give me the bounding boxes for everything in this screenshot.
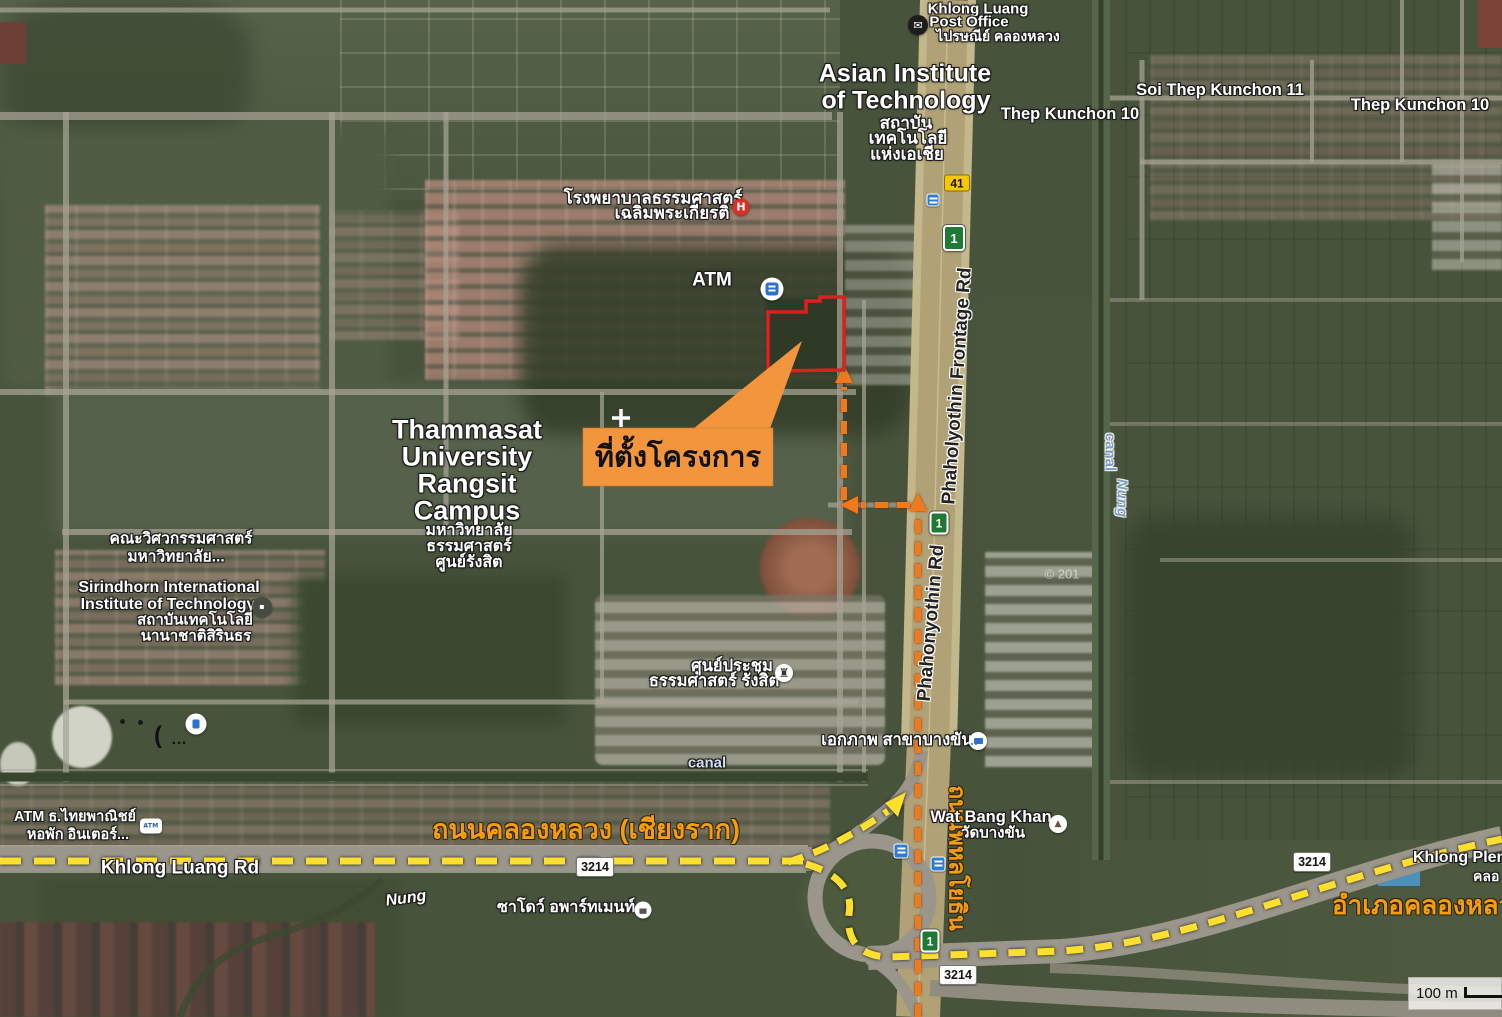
lodging-glyph: ▄ bbox=[640, 906, 647, 915]
ait-label-line1: Asian Institute bbox=[819, 62, 991, 87]
thep-kunchon-10-west-label: Thep Kunchon 10 bbox=[1001, 106, 1139, 123]
plus-marker bbox=[612, 409, 630, 427]
route-3214-shield-south: 3214 bbox=[939, 965, 977, 985]
thammasat-label-thai2: ธรรมศาสตร์ bbox=[426, 539, 511, 555]
highway-1-shield-top: 1 bbox=[943, 225, 965, 251]
soi-thep-kunchon-11-label: Soi Thep Kunchon 11 bbox=[1136, 82, 1304, 99]
canal-nung-label-canal: canal bbox=[1103, 433, 1118, 471]
route-3214-shield-east: 3214 bbox=[1293, 852, 1331, 872]
lodging-icon: ▄ bbox=[635, 902, 652, 919]
khlong-luang-thai-label: ถนนคลองหลวง (เชียงราก) bbox=[432, 817, 740, 844]
wat-bang-khan-label-line1: Wat Bang Khan bbox=[930, 809, 1051, 826]
highway-1-text: 1 bbox=[950, 232, 957, 245]
shadow-apartment-label: ซาโดว์ อพาร์ทเมนท์ bbox=[497, 900, 635, 916]
fuel-pump-glyph bbox=[193, 720, 200, 729]
post-office-label-thai: ไปรษณีย์ คลองหลวง bbox=[936, 29, 1059, 43]
copyright-watermark: © 201 bbox=[1045, 568, 1080, 581]
ekkaphap-branch-label: เอกภาพ สาขาบางขัน bbox=[821, 732, 972, 749]
envelope-glyph: ✉ bbox=[913, 20, 922, 31]
print-artifact-dot1 bbox=[120, 719, 125, 724]
temple-glyph: ▲ bbox=[1055, 820, 1062, 829]
thammasat-label-line3: Rangsit bbox=[417, 471, 516, 498]
ait-label-line2: of Technology bbox=[822, 89, 991, 114]
engineering-label-line2: มหาวิทยาลัย... bbox=[127, 549, 224, 565]
canal-nung-label-nung: Nung bbox=[1115, 479, 1130, 517]
thammasat-label-line4: Campus bbox=[414, 498, 521, 525]
route-3214-text: 3214 bbox=[581, 861, 609, 874]
site-callout-label: ที่ตั้งโครงการ bbox=[595, 444, 761, 473]
hospital-h-glyph: H bbox=[736, 202, 745, 213]
convention-label-line2: ธรรมศาสตร์ รังสิต bbox=[649, 673, 779, 690]
khlong-luang-rd-label: Khlong Luang Rd bbox=[101, 859, 259, 878]
print-artifact-paren: ( bbox=[154, 724, 162, 748]
siit-label-line1: Sirindhorn International bbox=[78, 580, 259, 596]
thammasat-label-line2: University bbox=[402, 444, 533, 471]
yellow-dashed-route-ramp bbox=[788, 811, 888, 862]
convention-glyph: ♜ bbox=[779, 667, 790, 679]
cart-glyph bbox=[974, 738, 983, 744]
bank-icon bbox=[761, 278, 784, 301]
map-canvas: Khlong Luang Post Office ไปรษณีย์ คลองหล… bbox=[0, 0, 1502, 1017]
canal-west-label: canal bbox=[688, 756, 726, 771]
route-41-text: 41 bbox=[950, 177, 963, 189]
scale-bar-rule bbox=[1464, 987, 1502, 998]
highway-1-shield-mid: 1 bbox=[930, 512, 949, 535]
highway-1-text: 1 bbox=[936, 517, 943, 529]
atm-scb-label-line2: หอพัก อินเตอร์... bbox=[27, 828, 129, 843]
siit-poi-icon: ▪ bbox=[252, 597, 272, 617]
temple-icon: ▲ bbox=[1049, 815, 1067, 833]
highway-1-shield-bottom: 1 bbox=[921, 930, 940, 953]
scale-bar-label: 100 m bbox=[1409, 985, 1458, 1002]
shopping-cart-icon bbox=[969, 732, 987, 750]
print-artifact-dots: … bbox=[171, 732, 187, 748]
atm-label: ATM bbox=[692, 271, 732, 290]
motorway-icon-interchange-east bbox=[931, 857, 946, 872]
siit-glyph: ▪ bbox=[259, 603, 264, 611]
cart-wheels bbox=[971, 743, 973, 745]
bank-glyph bbox=[766, 283, 779, 296]
scale-bar: 100 m bbox=[1408, 977, 1502, 1010]
atm-scb-icon-text: ATM bbox=[143, 823, 158, 829]
thammasat-label-line1: Thammasat bbox=[392, 417, 542, 444]
siit-label-thai1: สถาบันเทคโนโลยี bbox=[137, 613, 253, 628]
print-artifact-dot2 bbox=[138, 720, 143, 725]
atm-scb-label-line1: ATM ธ.ไทยพาณิชย์ bbox=[14, 810, 136, 825]
motorway-icon-top bbox=[927, 194, 940, 207]
convention-center-icon: ♜ bbox=[775, 664, 793, 682]
khlong-plen-label-line2: คลอ bbox=[1473, 869, 1499, 883]
thammasat-label-thai1: มหาวิทยาลัย bbox=[425, 523, 512, 539]
orange-arrowhead-up-highway bbox=[909, 493, 927, 511]
post-office-icon: ✉ bbox=[908, 15, 928, 35]
fuel-station-icon bbox=[186, 714, 207, 735]
engineering-label-line1: คณะวิศวกรรมศาสตร์ bbox=[110, 531, 253, 547]
siit-label-thai2: นานาชาติสิรินธร bbox=[141, 629, 251, 644]
highway-1-text: 1 bbox=[927, 935, 934, 947]
wat-bang-khan-label-line2: วัดบางขัน bbox=[961, 826, 1025, 841]
thammasat-label-thai3: ศูนย์รังสิต bbox=[435, 555, 502, 571]
route-3214-text: 3214 bbox=[944, 969, 972, 982]
atm-scb-icon: ATM bbox=[140, 819, 162, 834]
route-3214-text: 3214 bbox=[1298, 856, 1326, 869]
amphoe-khlong-luang-label: อำเภอคลองหลวง bbox=[1332, 892, 1502, 918]
khlong-plen-label-line1: Khlong Plen bbox=[1413, 850, 1502, 866]
route-3214-shield-west: 3214 bbox=[576, 857, 614, 877]
hospital-icon: H bbox=[733, 199, 750, 216]
motorway-icon-interchange-west bbox=[894, 844, 909, 859]
driving-route-orange bbox=[835, 365, 927, 1017]
route-41-shield: 41 bbox=[944, 175, 970, 192]
thep-kunchon-10-east-label: Thep Kunchon 10 bbox=[1351, 97, 1489, 114]
ait-label-thai3: แห่งเอเชีย bbox=[870, 146, 944, 163]
hospital-label-line2: เฉลิมพระเกียรติ bbox=[615, 205, 730, 222]
